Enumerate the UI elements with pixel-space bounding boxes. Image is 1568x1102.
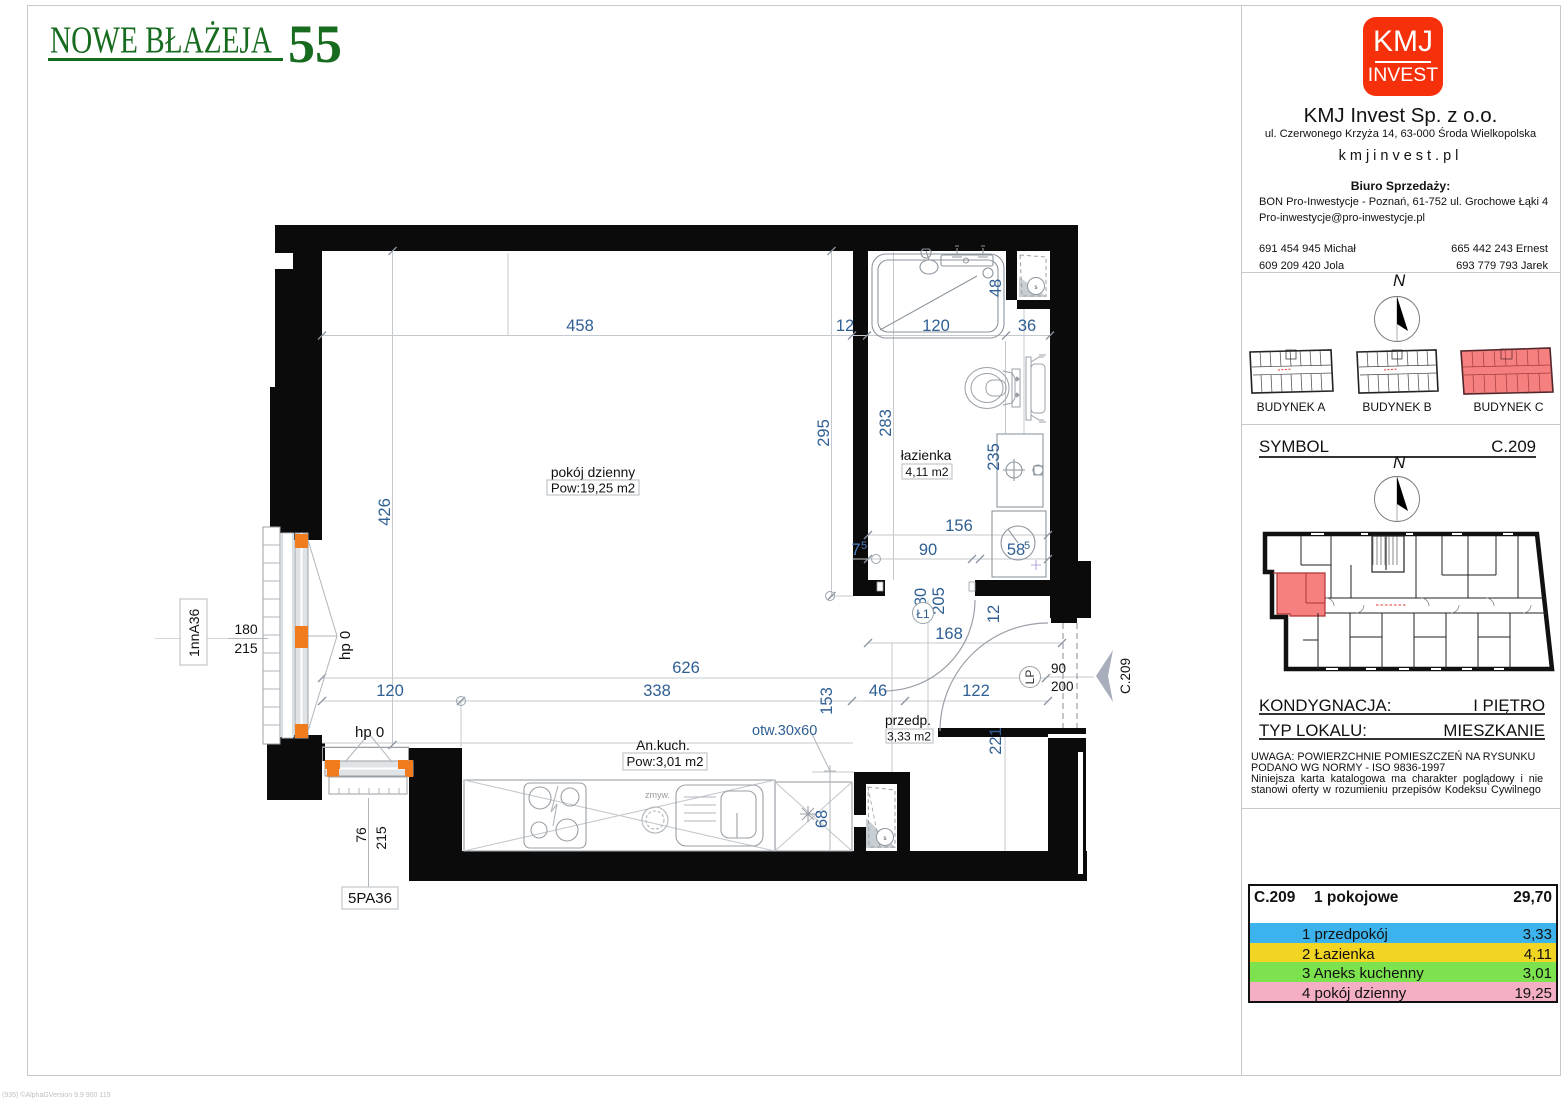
svg-text:hp 0: hp 0 <box>355 724 384 741</box>
svg-text:180: 180 <box>234 621 258 637</box>
svg-text:338: 338 <box>643 682 671 700</box>
svg-text:153: 153 <box>818 687 836 715</box>
svg-text:C.209: C.209 <box>1118 658 1133 694</box>
svg-text:458: 458 <box>566 317 594 335</box>
svg-text:5: 5 <box>1024 540 1030 552</box>
svg-text:7: 7 <box>851 541 860 559</box>
svg-text:łazienka: łazienka <box>901 448 952 463</box>
svg-text:46: 46 <box>869 682 887 700</box>
svg-text:58: 58 <box>1007 541 1025 559</box>
svg-text:120: 120 <box>922 317 950 335</box>
svg-text:426: 426 <box>376 498 394 526</box>
svg-text:156: 156 <box>945 517 973 535</box>
svg-text:hp 0: hp 0 <box>337 631 354 660</box>
svg-text:626: 626 <box>672 659 700 677</box>
svg-text:12: 12 <box>985 605 1003 623</box>
svg-text:pokój dzienny: pokój dzienny <box>551 465 635 480</box>
svg-text:Pow:19,25 m2: Pow:19,25 m2 <box>551 481 635 496</box>
svg-text:168: 168 <box>935 625 963 643</box>
svg-text:295: 295 <box>815 419 833 447</box>
svg-text:3,33 m2: 3,33 m2 <box>887 730 931 744</box>
svg-text:36: 36 <box>1018 317 1036 335</box>
svg-text:68: 68 <box>813 810 831 828</box>
svg-text:12: 12 <box>836 317 854 335</box>
svg-text:48: 48 <box>987 279 1005 297</box>
svg-text:215: 215 <box>234 640 258 656</box>
svg-text:5: 5 <box>861 540 867 552</box>
svg-text:120: 120 <box>376 682 404 700</box>
svg-text:otw.30x60: otw.30x60 <box>752 723 817 739</box>
svg-text:283: 283 <box>877 409 895 437</box>
svg-text:1nnA36: 1nnA36 <box>186 609 202 657</box>
svg-text:zmyw.: zmyw. <box>645 790 670 800</box>
svg-text:235: 235 <box>985 443 1003 471</box>
svg-text:5PA36: 5PA36 <box>348 890 392 907</box>
svg-text:200: 200 <box>1051 679 1074 694</box>
svg-text:122: 122 <box>962 682 990 700</box>
svg-text:90: 90 <box>1051 661 1066 676</box>
svg-text:s: s <box>884 836 887 842</box>
svg-text:N: N <box>1393 453 1406 472</box>
svg-text:N: N <box>1393 271 1406 290</box>
svg-text:s: s <box>1035 285 1038 291</box>
svg-text:4,11 m2: 4,11 m2 <box>905 465 948 479</box>
svg-text:LP: LP <box>1023 670 1037 685</box>
svg-text:An.kuch.: An.kuch. <box>636 738 690 753</box>
svg-text:90: 90 <box>919 541 937 559</box>
svg-text:Pow:3,01 m2: Pow:3,01 m2 <box>627 754 704 769</box>
svg-text:przedp.: przedp. <box>885 713 931 728</box>
svg-text:76: 76 <box>353 827 369 843</box>
svg-text:221: 221 <box>987 727 1005 755</box>
svg-text:Ł1: Ł1 <box>916 607 930 621</box>
svg-text:215: 215 <box>373 826 389 850</box>
